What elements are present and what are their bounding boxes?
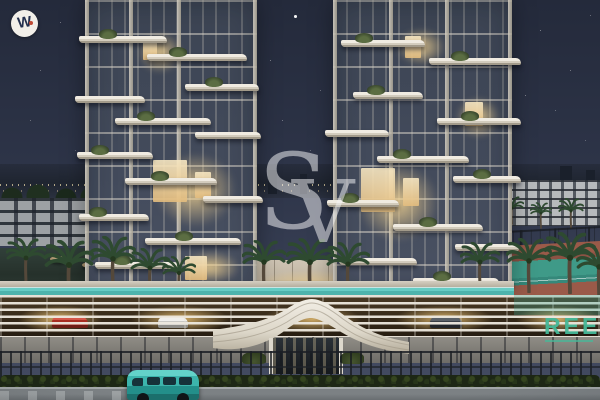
palm-tree [6, 238, 46, 286]
sv-monogram-watermark: S V [252, 146, 362, 261]
palm-tree [558, 198, 584, 229]
balcony-plant [473, 169, 491, 179]
balcony-plant [461, 111, 479, 121]
balcony-plant [433, 271, 451, 281]
logo-accent-dot [29, 21, 33, 25]
watermark-letter-v: V [292, 170, 354, 256]
balcony-plant [151, 171, 169, 181]
building-name-sign: REEF [544, 313, 600, 340]
balcony [125, 178, 217, 185]
balcony-plant [419, 217, 437, 227]
podium-glass-tint [514, 295, 600, 315]
balcony [429, 58, 521, 65]
lit-window [403, 178, 419, 206]
agency-logo-badge: W [11, 10, 38, 37]
balcony-plant [137, 111, 155, 121]
balcony [79, 36, 167, 43]
agency-logo-glyph: W [10, 12, 39, 33]
balcony-plant [367, 85, 385, 95]
balcony [341, 40, 425, 47]
lit-window [195, 172, 211, 198]
balcony [437, 118, 521, 125]
van-wheel [137, 393, 149, 400]
balcony [195, 132, 261, 139]
balcony-plant [205, 77, 223, 87]
balcony [393, 224, 483, 231]
balcony [185, 84, 259, 91]
palm-tree [576, 244, 600, 299]
balcony [147, 54, 247, 61]
van-window [179, 377, 192, 385]
balcony-plant [91, 145, 109, 155]
building-sign-subline [545, 340, 593, 342]
balcony [353, 92, 423, 99]
van-windshield [132, 378, 143, 386]
balcony [77, 152, 153, 159]
van-wheel [177, 393, 189, 400]
stars [0, 0, 1, 1]
balcony [75, 96, 145, 103]
van-window [163, 377, 176, 385]
balcony-plant [355, 33, 373, 43]
balcony [325, 130, 389, 137]
van-window [147, 377, 160, 385]
balcony-plant [99, 29, 117, 39]
balcony-plant [89, 207, 107, 217]
palm-tree [530, 202, 552, 229]
balcony-plant [169, 47, 187, 57]
balcony [145, 238, 241, 245]
balcony-plant [393, 149, 411, 159]
balcony [115, 118, 211, 125]
teal-van [127, 370, 199, 400]
balcony [377, 156, 469, 163]
balcony-plant [175, 231, 193, 241]
architectural-night-render: W S V REEF [0, 0, 600, 400]
balcony-plant [451, 51, 469, 61]
